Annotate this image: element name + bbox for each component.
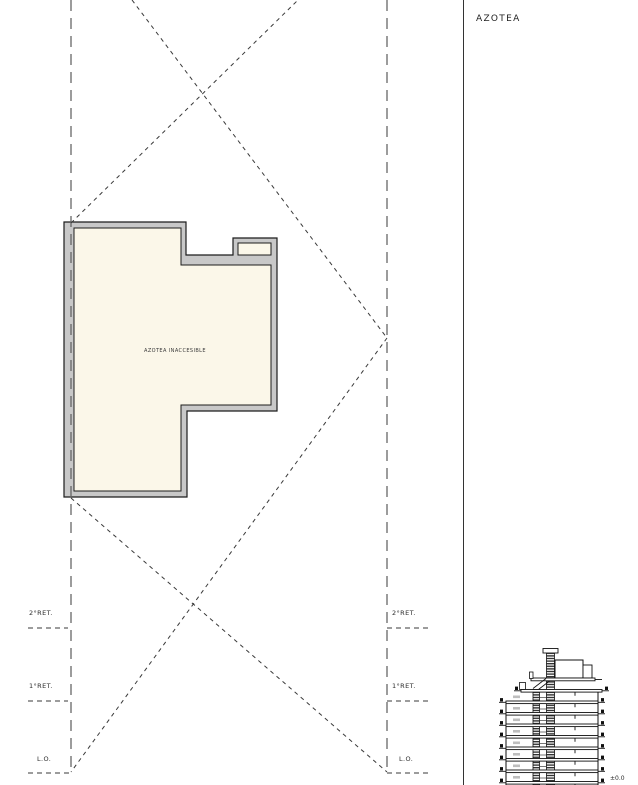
section-floor-element <box>515 687 518 690</box>
section-floor-element <box>601 744 604 747</box>
ret2-label-left: 2°RET. <box>29 610 53 617</box>
section-parapet <box>520 683 526 690</box>
section-overrun-cap <box>543 649 558 654</box>
section-floor-element <box>506 713 598 716</box>
section-floor-element <box>506 782 598 785</box>
sight-line-upper-a <box>71 0 298 223</box>
roof-area-label: AZOTEA INACCESIBLE <box>144 349 206 354</box>
section-floor-element <box>601 756 604 759</box>
section-level-label: ±0.0 <box>610 776 625 782</box>
section-floor-element <box>506 724 598 727</box>
drawing-sheet: AZOTEA AZOTEA INACCESIBLE 2°RET. 1°RET. … <box>0 0 638 785</box>
roof-plan <box>64 222 277 497</box>
section-floor-element <box>506 770 598 773</box>
ret2-label-right: 2°RET. <box>392 610 416 617</box>
section-floor-element <box>500 710 503 713</box>
section-floor-element <box>500 698 503 701</box>
section-roof-upstand <box>530 672 534 679</box>
section-floor-element <box>513 719 520 722</box>
section-floor-element <box>513 696 520 699</box>
section-floor-element <box>506 747 598 750</box>
section-floor-element <box>513 742 520 745</box>
section-floor-element <box>601 721 604 724</box>
section-floor-element <box>500 779 503 782</box>
section-floor-element <box>521 690 602 693</box>
section-core-shaft <box>547 651 555 785</box>
section-floor-element <box>500 756 503 759</box>
section-floor-element <box>513 730 520 733</box>
roof-shaft-box <box>238 243 271 255</box>
section-floor-element <box>500 721 503 724</box>
sight-line-lower-b <box>71 498 387 772</box>
section-floor-element <box>513 765 520 768</box>
section-floor-element <box>500 767 503 770</box>
section-floor-element <box>605 687 608 690</box>
section-floor-element <box>513 776 520 779</box>
section-floor-element <box>601 779 604 782</box>
section-floor-element <box>506 701 598 704</box>
roof-inaccessible-area <box>74 228 271 491</box>
section-roof-box <box>583 665 592 678</box>
section-floor-element <box>513 707 520 710</box>
section-floor-element <box>500 744 503 747</box>
lo-label-right: L.O. <box>399 756 413 763</box>
section-floor-element <box>500 733 503 736</box>
ret1-label-right: 1°RET. <box>392 683 416 690</box>
setback-marker-lines <box>28 628 428 773</box>
section-floor-element <box>601 698 604 701</box>
roof-plan-drawing <box>0 0 638 785</box>
section-roof-slab <box>531 678 595 681</box>
section-floor-element <box>506 759 598 762</box>
section-floor-element <box>506 736 598 739</box>
section-machine-room <box>555 660 583 678</box>
section-floors <box>499 687 609 785</box>
ret1-label-left: 1°RET. <box>29 683 53 690</box>
section-floor-element <box>601 767 604 770</box>
building-section <box>499 649 609 785</box>
section-floor-element <box>513 753 520 756</box>
sheet-title: AZOTEA <box>476 15 521 24</box>
section-floor-element <box>601 733 604 736</box>
section-floor-element <box>601 710 604 713</box>
lo-label-left: L.O. <box>37 756 51 763</box>
